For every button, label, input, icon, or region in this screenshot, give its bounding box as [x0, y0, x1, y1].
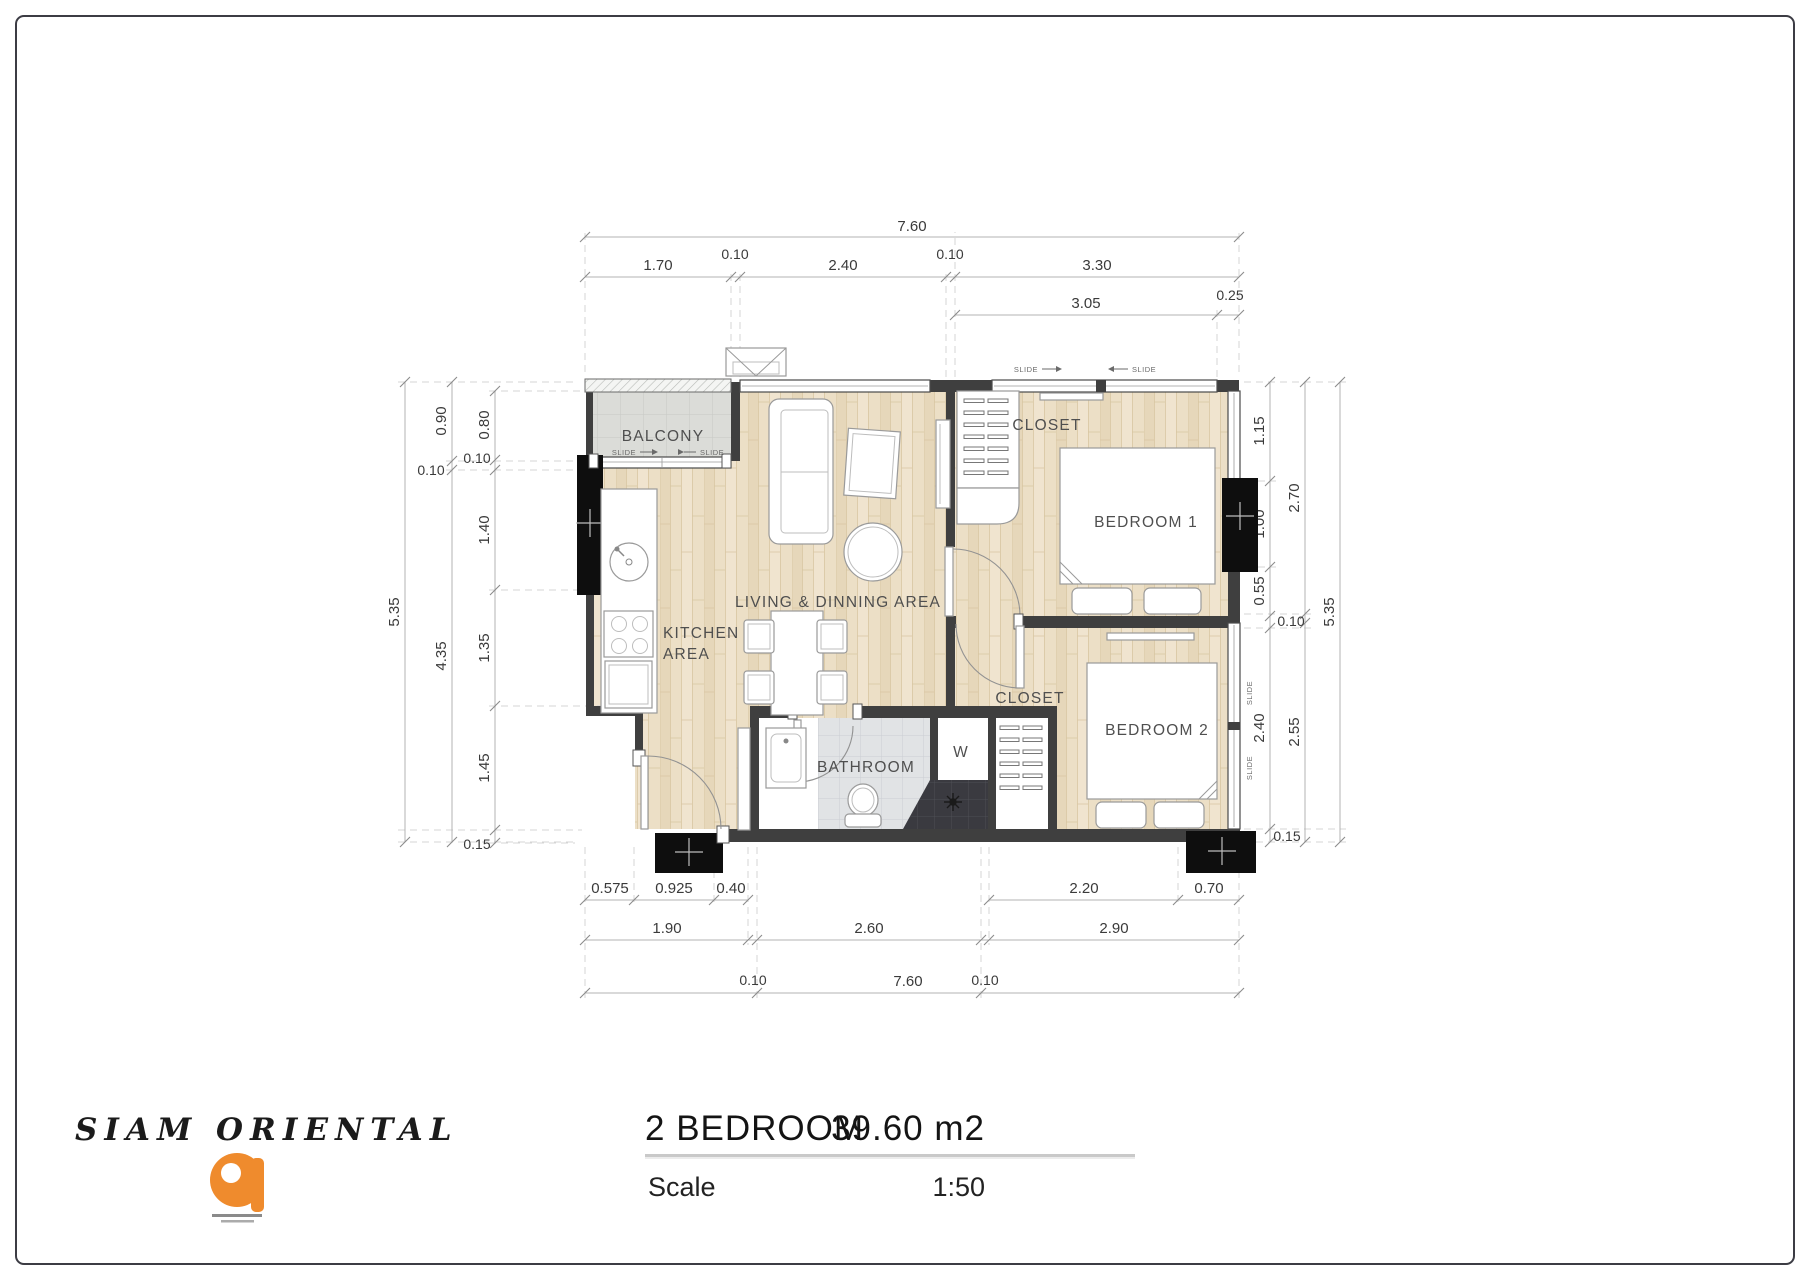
dim-bot-total: 7.60	[893, 973, 922, 990]
dim-right-wall-seg: 0.55	[1251, 576, 1268, 605]
label-closet-top: CLOSET	[1012, 417, 1081, 434]
title-block: SIAM ORIENTAL 2 BEDROOM 39.60 m2 Scale 1…	[75, 1109, 1135, 1223]
dim-left-balcony: 0.90	[433, 406, 450, 435]
logo-stem	[251, 1158, 264, 1212]
dim-left-wall-a: 0.10	[417, 462, 444, 478]
entry-notch	[577, 716, 635, 844]
dim-right-divider: 0.10	[1277, 613, 1304, 629]
dim-top-balcony: 1.70	[643, 257, 672, 274]
dim-left-total: 5.35	[386, 597, 403, 626]
entry-cabinet	[738, 728, 750, 830]
bedroom1-shelf	[1040, 393, 1103, 400]
dim-bot-entry1: 0.575	[591, 880, 629, 897]
dim-left-kitchen1: 1.40	[476, 515, 493, 544]
dining-table	[771, 611, 823, 715]
dim-bot-wall1: 0.10	[739, 972, 766, 988]
dim-left-bottom-wall: 0.15	[463, 836, 490, 852]
label-washer: W	[953, 744, 969, 761]
label-kitchen-2: AREA	[663, 646, 710, 663]
dim-bot-entry2: 0.40	[716, 880, 745, 897]
dim-bot-seg3: 2.90	[1099, 920, 1128, 937]
dim-bot-bed2a: 2.20	[1069, 880, 1098, 897]
logo-mark	[210, 1153, 264, 1223]
ac-unit	[726, 348, 786, 376]
slide-label-balcony-1: SLIDE	[612, 448, 636, 457]
balcony-railing	[585, 379, 731, 392]
stove	[604, 611, 653, 657]
bedroom2-shelf	[1107, 633, 1194, 640]
dim-left-kitchen2: 1.35	[476, 633, 493, 662]
slide-label-side-2: SLIDE	[1245, 756, 1254, 780]
logo-caption-line1	[212, 1214, 262, 1217]
dim-left-balcony-inner: 0.80	[476, 410, 493, 439]
round-table	[844, 523, 902, 581]
logo-caption-line2	[221, 1220, 254, 1223]
dim-right-window1: 1.15	[1251, 416, 1268, 445]
label-bathroom: BATHROOM	[817, 759, 915, 776]
dim-right-total: 5.35	[1321, 597, 1338, 626]
dim-left-entry: 1.45	[476, 753, 493, 782]
floor-plan-svg: 7.60 1.70 0.10 2.40 0.10 3.30 3.05 0.25 …	[0, 0, 1810, 1280]
dim-bot-door: 0.925	[655, 880, 693, 897]
bed1-pillow-2	[1144, 588, 1201, 614]
label-kitchen-1: KITCHEN	[663, 625, 739, 642]
drawing-sheet: 7.60 1.70 0.10 2.40 0.10 3.30 3.05 0.25 …	[0, 0, 1810, 1280]
dim-right-bed1-zone: 2.70	[1286, 483, 1303, 512]
dim-bot-bed2b: 0.70	[1194, 880, 1223, 897]
kitchen	[601, 489, 657, 713]
label-bedroom2: BEDROOM 2	[1105, 722, 1209, 739]
logo-counter	[221, 1163, 241, 1183]
dim-top-bedroom: 3.30	[1082, 257, 1111, 274]
toilet-tank	[845, 814, 881, 827]
dim-top-wall1: 0.10	[721, 246, 748, 262]
dim-top-total: 7.60	[897, 218, 926, 235]
label-balcony: BALCONY	[622, 428, 704, 445]
bedroom1-door-leaf	[945, 547, 953, 616]
scale-value: 1:50	[932, 1172, 985, 1202]
bedroom2-door-leaf	[1016, 626, 1024, 688]
label-closet-lower: CLOSET	[995, 690, 1064, 707]
dim-top-living: 2.40	[828, 257, 857, 274]
closet-top	[957, 391, 1019, 524]
column-bottom-right	[1186, 831, 1256, 873]
slide-label-side-1: SLIDE	[1245, 681, 1254, 705]
bed2-pillow-1	[1096, 802, 1146, 828]
unit-area: 39.60 m2	[831, 1109, 985, 1148]
dim-right-bed2-zone: 2.55	[1286, 717, 1303, 746]
scale-label: Scale	[648, 1172, 716, 1202]
title-separator	[645, 1154, 1135, 1157]
project-name: SIAM ORIENTAL	[75, 1112, 459, 1148]
bed1-pillow-1	[1072, 588, 1132, 614]
dim-right-bedroom2: 2.40	[1251, 713, 1268, 742]
dim-right-bottom-wall: 0.15	[1273, 828, 1300, 844]
kitchen-cabinet	[605, 661, 652, 708]
entrance-door-leaf	[641, 756, 648, 829]
dim-bot-seg1: 1.90	[652, 920, 681, 937]
wall-joint	[589, 454, 598, 468]
dim-top-column: 0.25	[1216, 287, 1243, 303]
slide-label-balcony-2: SLIDE	[700, 448, 724, 457]
vanity-faucet-icon	[784, 739, 789, 744]
slide-label-window-2: SLIDE	[1132, 365, 1156, 374]
dim-top-wall2: 0.10	[936, 246, 963, 262]
dim-top-bedroom-inner: 3.05	[1071, 295, 1100, 312]
label-bedroom1: BEDROOM 1	[1094, 514, 1198, 531]
tv-console	[936, 420, 950, 508]
dim-left-body: 4.35	[433, 641, 450, 670]
bed2-pillow-2	[1154, 802, 1204, 828]
slide-label-window-1: SLIDE	[1014, 365, 1038, 374]
dim-bot-seg2: 2.60	[854, 920, 883, 937]
dim-bot-wall2: 0.10	[971, 972, 998, 988]
title-separator-shadow	[645, 1157, 1135, 1159]
label-living: LIVING & DINNING AREA	[735, 594, 941, 611]
dim-left-wall-b: 0.10	[463, 450, 490, 466]
